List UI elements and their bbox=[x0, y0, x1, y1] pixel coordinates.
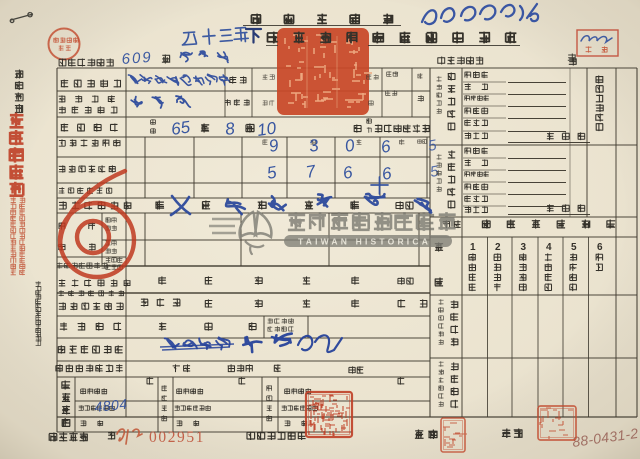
svg-text:5: 5 bbox=[571, 242, 577, 253]
svg-text:2: 2 bbox=[495, 242, 501, 253]
svg-text:3: 3 bbox=[521, 242, 527, 253]
svg-text:002951: 002951 bbox=[149, 429, 205, 446]
svg-text:4: 4 bbox=[546, 242, 552, 253]
svg-text:1: 1 bbox=[470, 242, 476, 253]
svg-text:65: 65 bbox=[170, 117, 192, 139]
svg-text:TAIWAN HISTORICA: TAIWAN HISTORICA bbox=[298, 237, 431, 247]
svg-text:609: 609 bbox=[121, 49, 153, 68]
svg-text:6: 6 bbox=[597, 242, 603, 253]
